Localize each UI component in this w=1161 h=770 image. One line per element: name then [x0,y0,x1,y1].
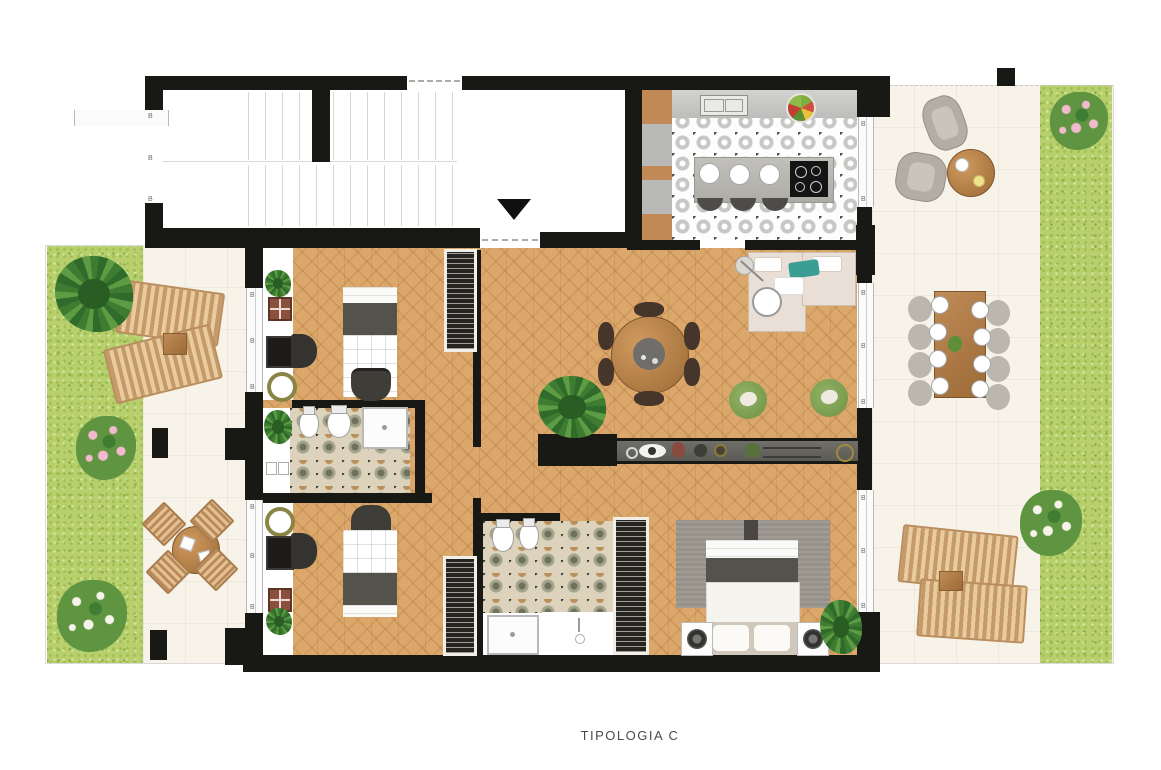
stair-flight-lower [248,165,455,226]
fruit-bowl [786,93,816,123]
bedroom1-art-frame [268,297,292,321]
bedroom3-plant [820,600,862,654]
eye-dish-center [648,447,656,455]
bedroom2-round-mirror [265,507,295,537]
table-plate [931,296,949,314]
burner-icon [795,182,805,192]
living-room-plant [538,376,606,438]
table-plate [931,377,949,395]
bedroom1-desk [266,336,294,368]
burner-icon [810,181,822,193]
kitchen-side-cabinets [642,90,672,240]
plan-caption: TIPOLOGIA C [540,728,720,743]
stair-flight-upper [248,92,455,160]
wall-entry-bottom [540,232,627,248]
entry-door-threshold [409,80,460,82]
bedroom2-desk [266,536,294,570]
sofa-pillow-white [754,257,782,272]
wall-bathroom2-top [477,513,560,521]
entrance-arrow-icon [497,199,531,220]
bathroom1-shower [362,407,408,449]
bedroom1-round-mirror [267,372,297,402]
bedroom3-nightstand [681,622,713,656]
window-mark: B [148,113,153,120]
wall-top-right [462,76,890,90]
bathroom1-toilet [327,410,351,438]
bathroom2-sink [575,634,585,644]
wall-top-left [145,76,407,90]
island-plate [729,164,750,185]
terrace-coffee-table [947,149,995,197]
window-mark: B [861,196,866,203]
window-mark: B [861,121,866,128]
column-right-terrace-top [997,68,1015,86]
bed3-blanket [706,558,798,582]
window-mark: B [250,553,255,560]
bed3-duvet [706,582,800,624]
wall-left-seg-c [245,613,263,655]
column-left-terrace-bottom [150,630,167,660]
bed1-foot-chair [351,368,391,401]
window-mark: B [861,290,866,297]
pier-left-bottom [225,628,247,665]
dining-chair [634,302,664,317]
dining-chair-gray [986,300,1010,326]
bedroom1-wardrobe [444,249,477,352]
sink-basin-left [704,99,724,112]
cooktop [790,161,828,197]
bathroom2-shower [487,615,539,655]
lounger-side-table [163,333,187,355]
green-pouf [810,379,848,417]
dining-chair [684,358,700,386]
bed3-pillow [753,624,791,652]
wall-kitchen-bottom-left [627,240,700,250]
window-mark: B [250,384,255,391]
window-mark: B [861,343,866,350]
wall-bottom [243,655,880,672]
bathroom1-sink [278,462,289,475]
bed3-sheet-band [706,540,798,558]
console-ring-decor [626,447,638,459]
pier-left-mid [225,428,247,460]
bed1-blanket [343,303,397,335]
wall-stair-divider [312,76,330,162]
dining-chair [684,322,700,350]
dining-chair [598,322,614,350]
bedroom1-shelf-plant [265,270,291,297]
wall-stair-bottom [145,228,480,248]
table-plate [973,355,991,373]
table-plate [971,301,989,319]
wall-living-block [538,434,617,466]
burner-icon [811,166,821,176]
console-dark-plant [694,444,707,457]
console-remotes [763,447,821,458]
window-kitchen [858,117,874,207]
console-eye-dish [639,444,666,458]
coffee-table-bowl [973,175,985,187]
window-mark: B [250,604,255,611]
floor-lamp [752,287,782,317]
wall-stair-left-a [145,76,163,110]
coffee-table-plate [955,158,969,172]
window-mark: B [250,504,255,511]
plot-edge-left [45,246,46,664]
console-gold-bowl [714,444,727,457]
dining-chair-gray [908,380,932,406]
dining-chair [598,358,614,386]
bed2-pillow-band [343,605,397,617]
bathroom1-bidet [299,411,319,438]
green-pouf [729,381,767,419]
window-mark: B [148,196,153,203]
dining-chair-gray [908,296,932,322]
bathroom2-bidet [519,523,539,550]
bed2-quilt [343,530,397,573]
wall-bathroom1-right [415,400,425,503]
wall-right-seg-b [857,207,872,283]
window-mark: B [861,603,866,610]
kitchen-sink [700,95,748,116]
dining-table-center-tray [633,338,665,370]
bathroom1-sink [266,462,277,475]
bed2-blanket [343,573,397,605]
plot-edge-right [1113,85,1114,664]
dining-chair [634,391,664,406]
table-plate [973,328,991,346]
window-stair-left [74,110,169,126]
dining-chair-gray [908,324,932,350]
window-mark: B [250,338,255,345]
island-plate [759,164,780,185]
console-red-plant [672,442,685,458]
console-gold-dish [836,444,854,462]
napkin [179,535,196,552]
bedroom3-wardrobe [613,517,649,655]
table-plate [971,380,989,398]
bathroom2-toilet [492,524,514,552]
window-mark: B [861,495,866,502]
wall-left-seg-a [245,245,263,288]
column-left-terrace-mid [152,428,168,458]
wall-bathroom1-bottom [247,493,432,503]
right-garden-grass [1040,85,1112,663]
table-plate [929,350,947,368]
bedroom2-shelf-plant [266,608,292,635]
wall-kitchen-left [625,88,642,244]
bathroom2-faucet [578,618,580,632]
window-mark: B [861,548,866,555]
table-plate [929,323,947,341]
plot-edge-left-top [45,245,143,246]
window-mark: B [148,155,153,162]
bathroom1-plant [264,410,292,444]
wall-left-seg-b [245,392,263,500]
wall-kitchen-bottom-right [745,240,857,250]
dining-chair-gray [986,384,1010,410]
lounger-side-table [939,571,963,591]
wall-bathroom2-left [477,513,483,655]
burner-icon [795,166,807,178]
sink-basin-right [725,99,743,112]
tray-dish [641,355,646,360]
bed1-pillow-band [343,287,397,303]
stair-landing-line [163,161,457,162]
floor-plan-tipologia-c: B B B B B B B B B B B B B B B B B [0,0,1161,770]
window-mark: B [250,292,255,299]
sun-lounger [916,578,1028,643]
hall-living-threshold [482,239,538,241]
bed3-pillow [712,624,750,652]
bedroom2-wardrobe [443,556,477,656]
island-plate [699,163,720,184]
window-mark: B [861,399,866,406]
tray-dish [652,358,658,364]
wall-right-seg-a [857,90,872,117]
